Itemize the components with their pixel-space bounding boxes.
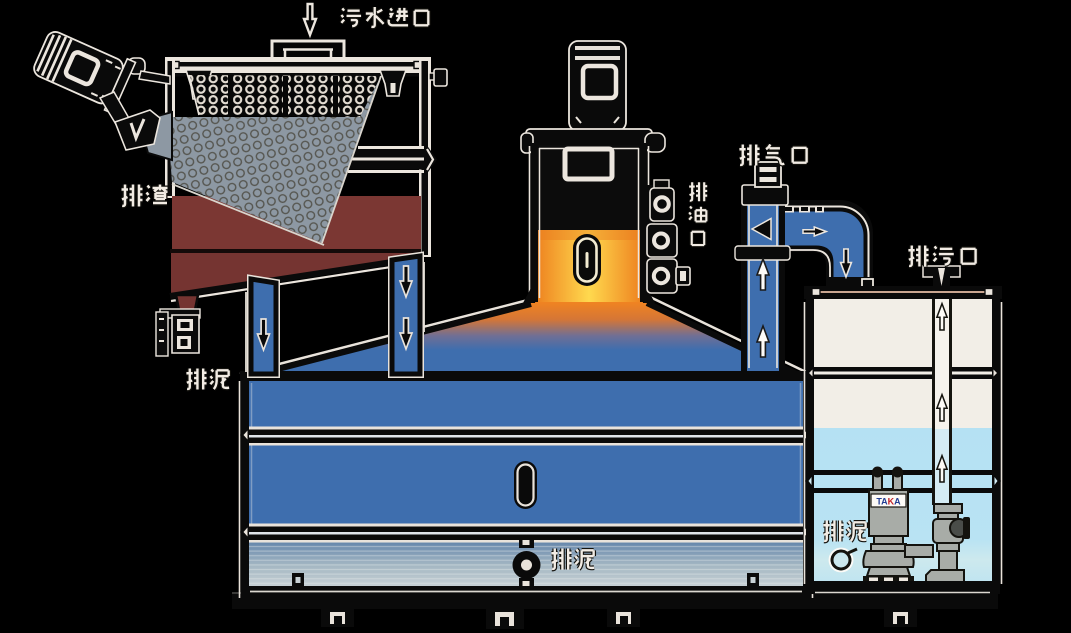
svg-text:TAKA: TAKA [876, 497, 901, 507]
